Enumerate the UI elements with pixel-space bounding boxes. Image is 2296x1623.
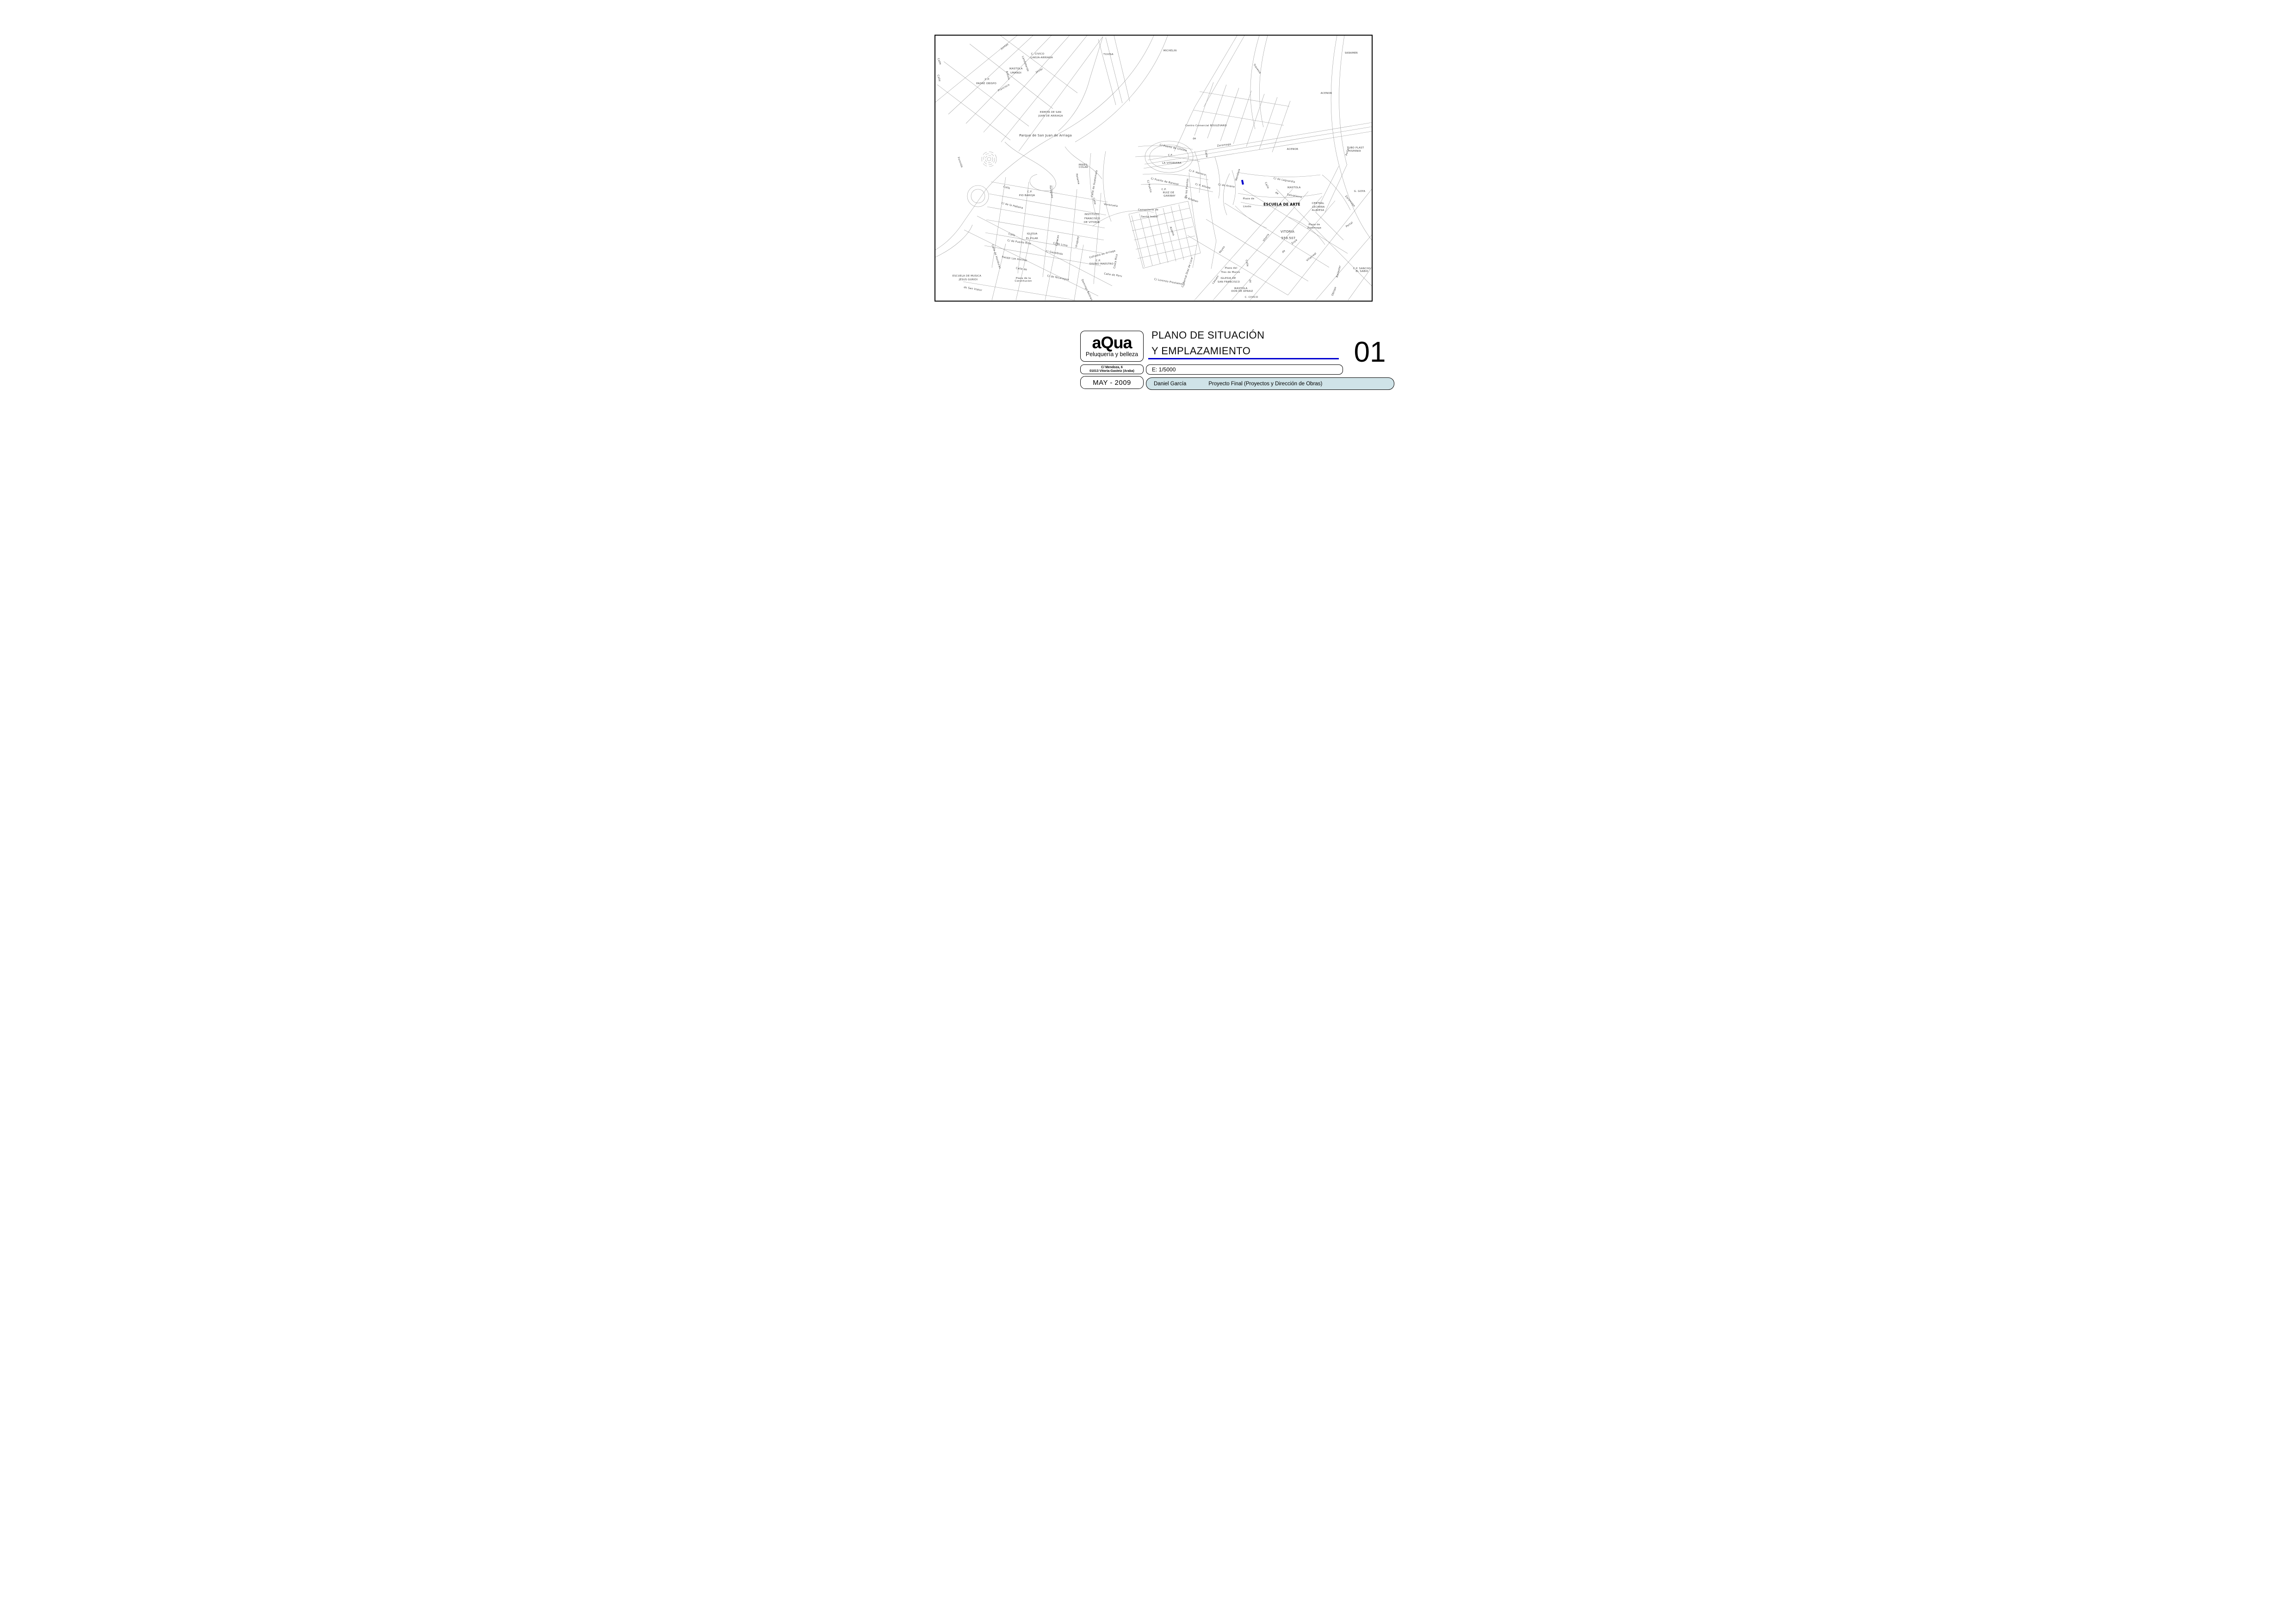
author-name: Daniel García: [1154, 381, 1186, 387]
sheet-number: 01: [1347, 336, 1393, 369]
company-address-box: C/ Mendoza, 6 01013 Vitoria-Gasteiz (Ara…: [1080, 364, 1144, 374]
plan-sheet: JuntasC. CIVICOLAKUA-ARRIAGAIKASTOLAUMAN…: [861, 0, 1435, 406]
drawing-title-line2: Y EMPLAZAMIENTO: [1151, 343, 1264, 359]
project-name: Proyecto Final (Proyectos y Dirección de…: [1208, 381, 1322, 387]
scale-box: E: 1/5000: [1146, 364, 1343, 375]
company-logo-box: aQua Peluquería y belleza: [1080, 331, 1144, 362]
date-label: MAY - 2009: [1093, 379, 1131, 387]
date-box: MAY - 2009: [1080, 376, 1144, 389]
company-tagline: Peluquería y belleza: [1086, 351, 1138, 358]
address-line-2: 01013 Vitoria-Gasteiz (Araba): [1089, 370, 1134, 373]
title-underline: [1148, 358, 1339, 359]
street-network: [935, 36, 1372, 301]
company-logo: aQua: [1092, 335, 1132, 351]
author-project-bar: Daniel García Proyecto Final (Proyectos …: [1146, 377, 1394, 390]
site-map: JuntasC. CIVICOLAKUA-ARRIAGAIKASTOLAUMAN…: [934, 35, 1373, 302]
scale-label: E: 1/5000: [1152, 366, 1176, 373]
address-line-1: C/ Mendoza, 6: [1101, 366, 1123, 370]
drawing-title-line1: PLANO DE SITUACIÓN: [1151, 327, 1264, 343]
drawing-title: PLANO DE SITUACIÓN Y EMPLAZAMIENTO: [1151, 327, 1264, 359]
